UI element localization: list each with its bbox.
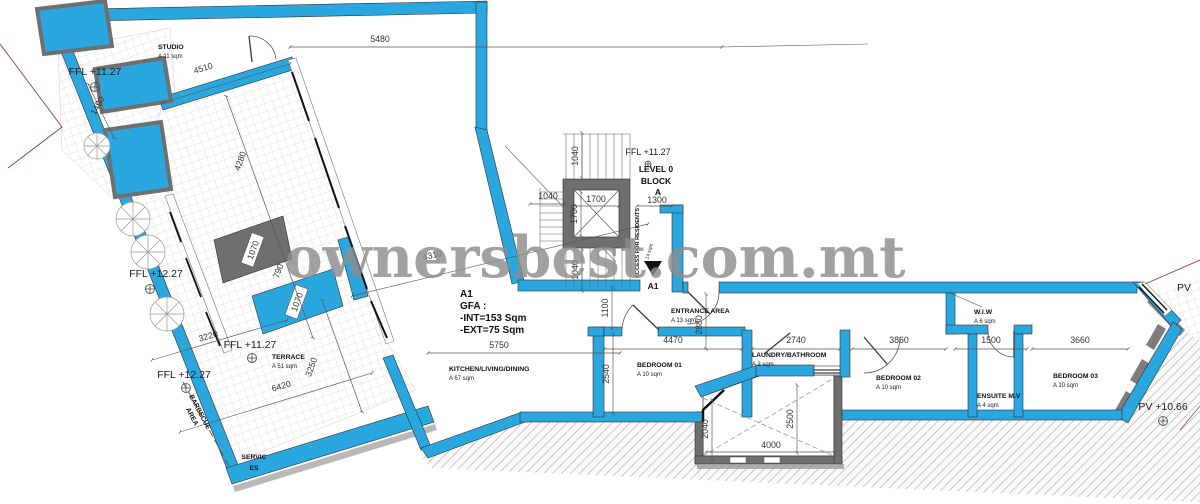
dim-1040-left: 1040 (538, 191, 558, 201)
room-label-terrace: TERRACE (272, 354, 305, 361)
room-label-bedroom2: BEDROOM 02 (876, 375, 921, 382)
room-label-kitchen: KITCHEN/LIVING/DINING (449, 366, 529, 373)
room-area-ensuite: A 4 sqm (977, 403, 999, 409)
dim-1500: 1500 (981, 335, 1001, 345)
gfa-int: -INT=153 Sqm (460, 313, 527, 324)
room-label-entrance: ENTRANCE AREA (671, 308, 730, 315)
dim-2880: 2880 (694, 315, 704, 335)
ffl-core: FFL +11.27 (625, 147, 670, 157)
ffl-studio: FFL +11.27 (69, 66, 122, 78)
room-label-services-1: SERVIC (241, 454, 266, 461)
ffl-bbq: FFL +12.27 (157, 369, 211, 381)
room-area-bedroom1: A 10 sqm (637, 372, 662, 378)
room-area-bedroom2: A 10 sqm (876, 385, 901, 391)
room-area-wiw: A 6 sqm (974, 319, 996, 325)
room-area-studio: A 11 sqm (158, 54, 183, 60)
watermark-text: ownersbest.com.mt (285, 224, 906, 291)
dim-1700-v: 1700 (569, 204, 579, 224)
ffl-left: FFL +12.27 (129, 268, 183, 280)
dim-4470: 4470 (663, 335, 683, 345)
gfa-ext: -EXT=75 Sqm (460, 325, 524, 336)
dim-4000: 4000 (761, 440, 781, 450)
core-level-line2: BLOCK (641, 176, 672, 186)
dim-1700-h: 1700 (586, 194, 606, 204)
dim-5480: 5480 (370, 34, 390, 44)
room-label-bedroom3: BEDROOM 03 (1053, 373, 1098, 380)
floor-plan-drawing: 1070 1070 (0, 0, 1200, 504)
dim-3860: 3860 (889, 335, 909, 345)
gfa-label: GFA : (460, 301, 486, 312)
dim-1300: 1300 (647, 195, 667, 205)
room-area-laundry: A 3 sqm (752, 362, 774, 368)
ffl-terrace: FFL +11.27 (224, 339, 277, 351)
dim-2500: 2500 (785, 409, 795, 429)
core-level-line1: LEVEL 0 (639, 164, 674, 174)
dim-3660: 3660 (1070, 335, 1090, 345)
room-area-entrance: A 13 sqm (671, 318, 696, 324)
room-area-terrace: A 51 sqm (272, 364, 297, 370)
pv-yard-label: PV +10.66 (1138, 401, 1187, 413)
dim-2540: 2540 (601, 364, 611, 384)
dim-5750: 5750 (489, 340, 509, 350)
room-label-wiw: W.I.W (974, 309, 993, 316)
dim-2040: 2040 (700, 419, 710, 439)
room-label-bedroom1: BEDROOM 01 (637, 362, 682, 369)
dim-1100: 1100 (600, 298, 610, 317)
pv-label: PV (1177, 282, 1191, 294)
dim-1040-top: 1040 (570, 146, 580, 166)
room-label-ensuite: ENSUITE M.V (977, 393, 1021, 400)
floor-plan-page: 1070 1070 (0, 0, 1200, 504)
room-area-bedroom3: A 10 sqm (1053, 383, 1078, 389)
room-label-laundry: LAUNDRY/BATHROOM (752, 352, 827, 359)
room-area-kitchen: A 67 sqm (449, 376, 474, 382)
room-label-studio: STUDIO (158, 44, 184, 51)
dim-2740: 2740 (786, 335, 806, 345)
room-label-services-2: ES (249, 465, 259, 472)
